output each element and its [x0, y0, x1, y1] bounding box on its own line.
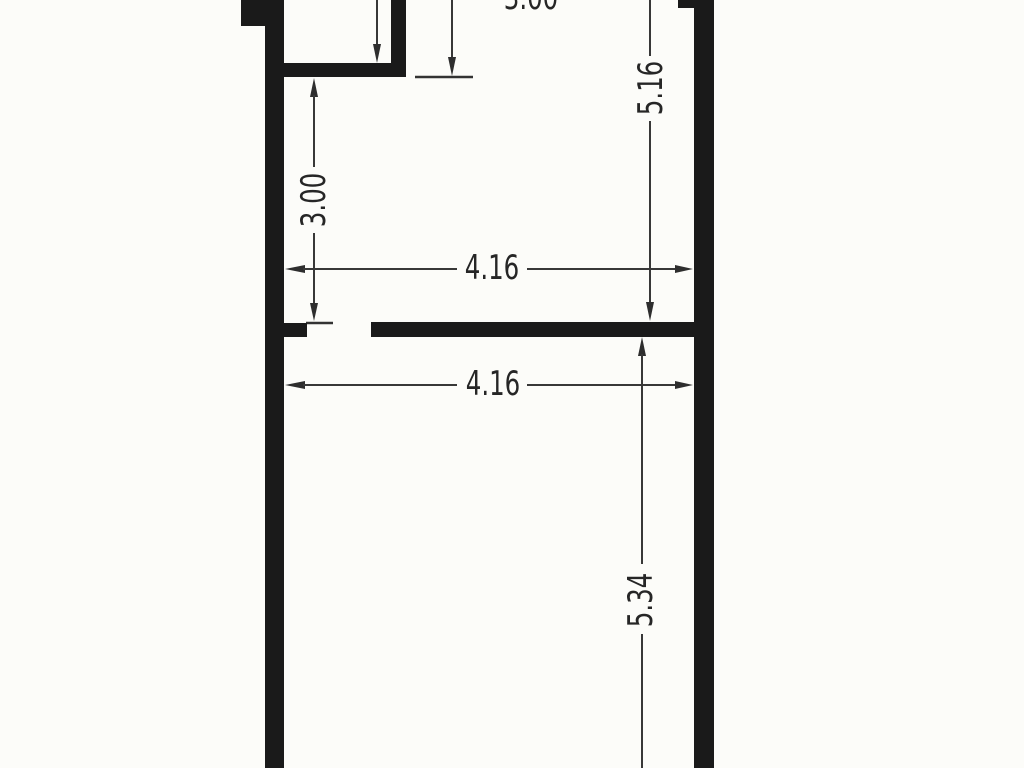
dimension-label-upper-width: 4.16: [465, 251, 520, 285]
arrowhead-right-icon: [675, 381, 693, 389]
arrowhead-left-icon: [285, 265, 305, 273]
floor-plan-scan: 3.00 5.16 3.00 4.16 4.16 5.34: [0, 0, 1024, 768]
arrowhead-down-icon: [448, 57, 456, 76]
wall-left-exterior: [265, 0, 284, 768]
dimension-label-top-width: 3.00: [504, 0, 559, 15]
wall-top-left-room-right: [391, 0, 406, 77]
dimension-label-right-lower-height: 5.34: [624, 573, 658, 628]
arrowhead-right-icon: [675, 265, 693, 273]
dim-line-5-16: [646, 0, 654, 321]
wall-right-exterior: [694, 0, 714, 768]
dimension-label-right-upper-height: 5.16: [634, 61, 668, 116]
arrowhead-down-icon: [310, 303, 318, 321]
dim-line-top-tick: [415, 0, 473, 77]
arrowhead-down-icon: [373, 44, 381, 63]
arrowhead-down-icon: [646, 302, 654, 321]
wall-interior-partition: [371, 322, 694, 337]
dimension-label-left-height: 3.00: [297, 173, 331, 228]
arrowhead-up-icon: [310, 78, 318, 97]
wall-right-top-nub: [678, 0, 694, 8]
dimension-label-lower-width: 4.16: [466, 367, 521, 401]
dim-line-topleft-room: [373, 0, 381, 63]
wall-interior-door-stub: [284, 323, 307, 337]
arrowhead-left-icon: [285, 381, 305, 389]
dim-line-5-34: [638, 337, 646, 768]
wall-top-left-room-bottom: [265, 63, 406, 77]
arrowhead-up-icon: [638, 337, 646, 356]
